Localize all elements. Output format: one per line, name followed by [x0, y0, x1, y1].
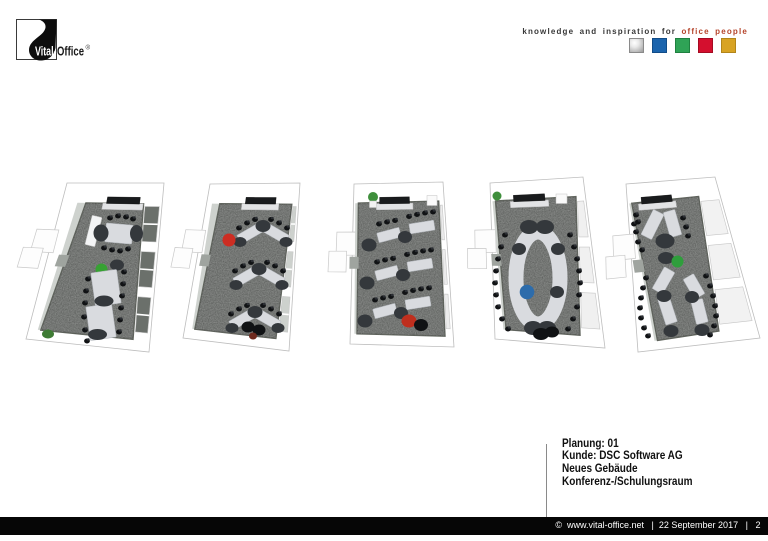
svg-text:Vital-: Vital-	[35, 44, 57, 59]
svg-text:Office: Office	[57, 44, 84, 59]
svg-text:®: ®	[86, 44, 91, 52]
